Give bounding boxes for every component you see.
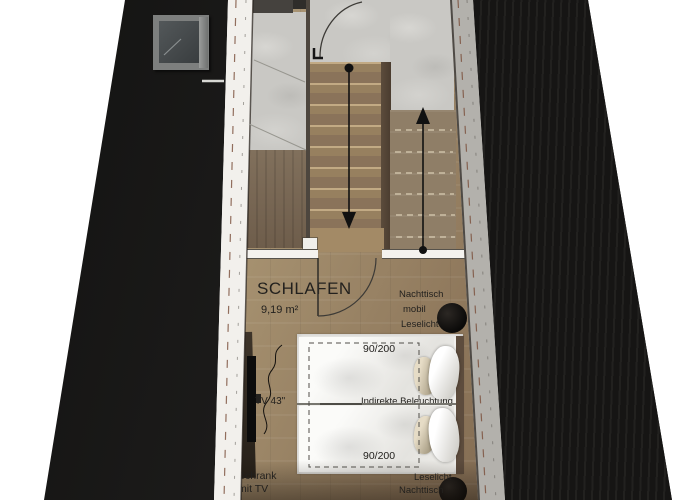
cabinet-line1: Schrank bbox=[238, 470, 277, 483]
skylight-window-icon bbox=[153, 15, 209, 70]
nightstand-bottom-label: Nachttisch bbox=[399, 485, 443, 496]
bed-size-top-label: 90/200 bbox=[363, 343, 395, 355]
nightstand-top-line1: Nachttisch bbox=[399, 287, 443, 302]
cabinet-line2: mit TV bbox=[238, 483, 277, 496]
reading-light-bottom-label: Leselicht bbox=[414, 472, 452, 483]
landing-floor-right bbox=[390, 0, 454, 112]
nightstand-top-line2: mobil bbox=[403, 302, 443, 317]
bed-size-bottom-label: 90/200 bbox=[363, 450, 395, 462]
skylight-frame bbox=[199, 17, 208, 68]
bedroom-wall-left-segment bbox=[245, 249, 318, 259]
nightstand-top-line3: Leselicht bbox=[401, 317, 443, 332]
wardrobe-panel bbox=[247, 150, 306, 248]
floor-plan-canvas: SCHLAFEN 9,19 m² Nachttisch mobil Leseli… bbox=[0, 0, 700, 500]
nightstand-top-label: Nachttisch mobil Leselicht bbox=[399, 287, 443, 332]
room-area-label: 9,19 m² bbox=[261, 304, 298, 316]
counter-top bbox=[253, 0, 293, 13]
bedroom-wall-right-segment bbox=[382, 249, 466, 259]
cabinet-label: Schrank mit TV bbox=[238, 470, 277, 496]
room-name-label: SCHLAFEN bbox=[257, 279, 352, 299]
stair-landing-wood bbox=[390, 110, 456, 252]
skylight-glass bbox=[159, 21, 199, 63]
indirect-lighting-label: Indirekte Beleuchtung bbox=[361, 396, 453, 407]
stair-landing-step bbox=[310, 228, 384, 252]
shower-area bbox=[248, 12, 308, 152]
tv-size-label: TV 43" bbox=[255, 396, 285, 407]
staircase-steps bbox=[310, 62, 384, 228]
